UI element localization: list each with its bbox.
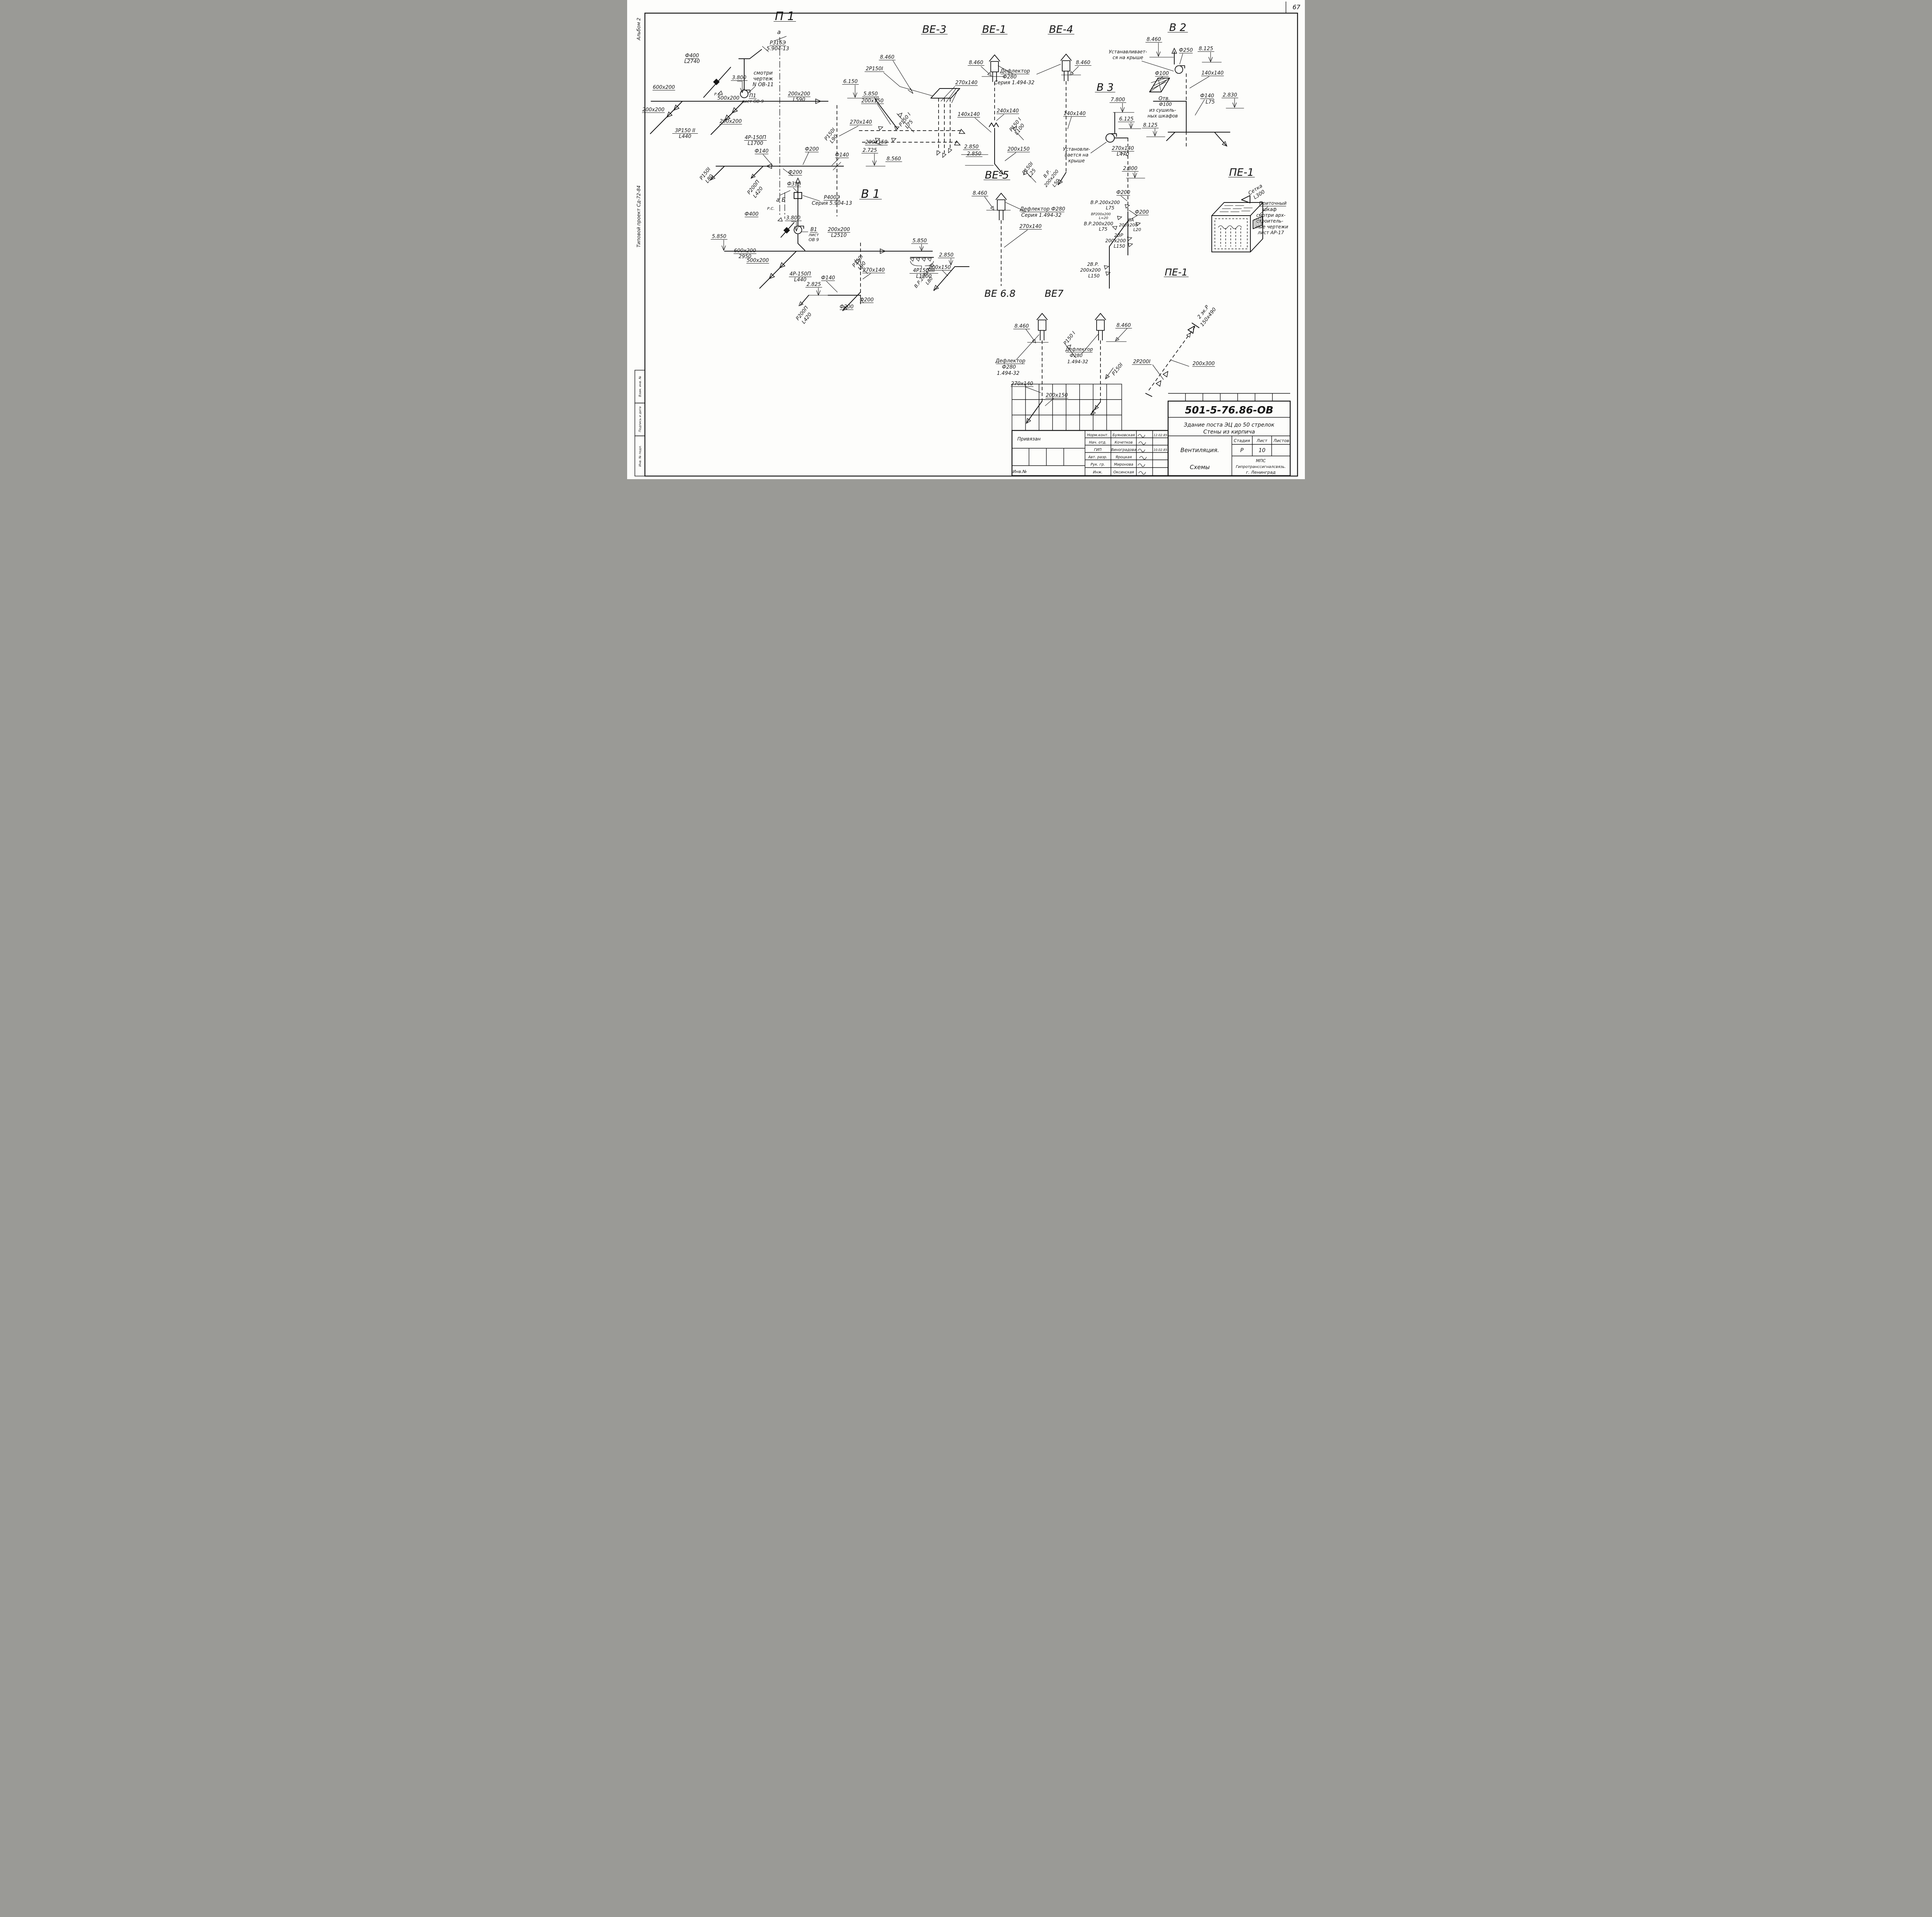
svg-text:крыше: крыше	[1068, 158, 1085, 163]
svg-text:Р400Э: Р400Э	[824, 195, 840, 201]
svg-text:5.904-13: 5.904-13	[767, 46, 789, 52]
annotation-label: 200x200	[642, 107, 665, 113]
annotation-label: 2.850	[966, 151, 983, 157]
svg-text:2.850: 2.850	[967, 151, 981, 157]
section-title-v2: В 2	[1168, 22, 1188, 34]
annotation-label: строитель-	[1256, 218, 1283, 224]
svg-text:8.125: 8.125	[1143, 122, 1157, 128]
annotation-label: 270x140	[1112, 146, 1134, 151]
svg-text:2В.Р.: 2В.Р.	[1087, 262, 1099, 267]
annotation-label: L=20	[1099, 216, 1108, 220]
svg-text:лист: лист	[808, 232, 819, 237]
svg-text:200x150: 200x150	[929, 265, 951, 270]
object-line2: Стены из кирпича	[1203, 429, 1255, 435]
org-line1: МПС	[1256, 458, 1266, 463]
annotation-label: Отв.	[1157, 96, 1171, 102]
annotation-label: L75	[1099, 226, 1107, 232]
sign-name-3: Яроцкая	[1115, 455, 1132, 459]
annotation-label: Ф200	[1116, 190, 1130, 196]
annotation-label: Ф200	[1135, 209, 1149, 215]
svg-text:Ф280: Ф280	[1070, 353, 1083, 358]
annotation-label: смотри арх-	[1256, 213, 1286, 218]
annotation-label: Ф140	[755, 148, 769, 154]
sign-date-0: 12.02.85	[1153, 434, 1167, 437]
doc-title-line2: Схемы	[1190, 464, 1210, 471]
svg-text:L20: L20	[1133, 227, 1141, 232]
annotation-label: 6.125	[1118, 116, 1135, 122]
svg-text:Серия 1.494-32: Серия 1.494-32	[1021, 213, 1061, 218]
annotation-label: 140x140	[1201, 70, 1224, 76]
svg-text:5.850: 5.850	[912, 238, 927, 244]
page-number: 67	[1293, 3, 1301, 11]
svg-text:П1: П1	[749, 93, 756, 99]
annotation-label: чертеж	[753, 76, 773, 82]
svg-text:L75: L75	[1206, 99, 1215, 105]
svg-text:270x140: 270x140	[1011, 381, 1033, 387]
annotation-label: Ф140	[821, 275, 835, 281]
margin-album: Альбом 2	[636, 18, 641, 41]
svg-text:6.150: 6.150	[843, 79, 857, 85]
annotation-label: 8.460	[1014, 323, 1030, 329]
annotation-label: 200x150	[929, 265, 951, 270]
sign-role-3: Авт. разр.	[1088, 455, 1107, 459]
annotation-label: Ф140	[1200, 93, 1214, 99]
svg-text:600x200: 600x200	[734, 248, 756, 254]
stage-value: Р	[1240, 447, 1244, 454]
annotation-label: Ф280	[1003, 74, 1017, 80]
svg-text:ВЕ-4: ВЕ-4	[1049, 24, 1073, 36]
annotation-label: 600x200	[653, 85, 675, 90]
svg-text:Серия 1.494-32: Серия 1.494-32	[994, 80, 1034, 86]
annotation-label: 270x140	[1011, 381, 1034, 387]
annotation-label: 2.800	[1122, 166, 1139, 172]
section-title-pe1-bottom: ПЕ-1	[1164, 267, 1189, 278]
annotation-label: из сушиль-	[1149, 107, 1176, 113]
annotation-label: 200x200	[788, 91, 811, 97]
annotation-label: L2510	[831, 233, 847, 238]
annotation-label: Р.С.	[767, 207, 774, 211]
svg-text:ОВ 9: ОВ 9	[809, 237, 819, 242]
annotation-label: 200x150	[1007, 146, 1030, 152]
section-title-p1: П 1	[774, 10, 796, 23]
svg-text:240x140: 240x140	[997, 108, 1019, 114]
svg-text:шкаф: шкаф	[1263, 207, 1277, 212]
svg-text:2ВР: 2ВР	[1114, 233, 1123, 238]
section-title-ve4: ВЕ-4	[1048, 24, 1075, 36]
svg-text:270x140: 270x140	[850, 119, 872, 125]
svg-text:Ф200: Ф200	[805, 146, 819, 152]
svg-text:140x140: 140x140	[1063, 111, 1085, 117]
svg-text:2Р150I: 2Р150I	[866, 66, 883, 72]
svg-text:2.850: 2.850	[964, 144, 978, 150]
annotation-label: ся на крыше	[1112, 55, 1143, 60]
svg-text:Ф140: Ф140	[1200, 93, 1214, 99]
svg-text:2.800: 2.800	[1123, 166, 1137, 172]
annotation-label: Дефлектор	[1065, 347, 1093, 352]
svg-text:Ф200: Ф200	[860, 297, 874, 303]
svg-text:270x140: 270x140	[862, 267, 884, 273]
binding-note: Привязан	[1017, 436, 1041, 442]
annotation-label: 2.850	[938, 252, 955, 258]
annotation-label: ОВ 9	[809, 237, 819, 242]
svg-text:200x200: 200x200	[1080, 267, 1101, 273]
svg-text:8.460: 8.460	[1014, 323, 1029, 329]
annotation-label: В.Р.200x200	[1090, 200, 1120, 205]
svg-text:1.494-32: 1.494-32	[1067, 359, 1088, 364]
annotation-label: 5.850	[862, 91, 879, 97]
annotation-label: ных шкафов	[1148, 113, 1178, 119]
svg-text:L75: L75	[1099, 226, 1107, 232]
svg-text:ПЕ-1: ПЕ-1	[1229, 167, 1254, 179]
svg-text:Р.С.: Р.С.	[767, 207, 774, 211]
svg-text:ВЕ-3: ВЕ-3	[922, 24, 947, 36]
svg-text:L470: L470	[1117, 151, 1129, 157]
svg-text:200x150: 200x150	[1046, 393, 1068, 398]
annotation-label: 2Р150I	[865, 66, 884, 72]
svg-text:600x200: 600x200	[653, 85, 675, 90]
svg-text:7.800: 7.800	[1111, 97, 1125, 103]
svg-text:L590: L590	[793, 97, 805, 103]
svg-text:200x300: 200x300	[1192, 361, 1214, 367]
svg-text:Ф315: Ф315	[787, 181, 801, 187]
svg-text:В.Р.200x200: В.Р.200x200	[1090, 200, 1120, 205]
svg-text:П 1: П 1	[775, 10, 794, 23]
annotation-label: Ф400	[685, 53, 699, 59]
sign-name-1: Кочетков	[1115, 441, 1133, 445]
svg-text:2Р200I: 2Р200I	[1133, 359, 1151, 365]
annotation-label: Р400Э	[824, 195, 840, 201]
svg-text:5.850: 5.850	[863, 91, 878, 97]
svg-text:500x200: 500x200	[717, 95, 739, 101]
annotation-label: Устанавливает-	[1109, 49, 1147, 54]
svg-text:Ф200: Ф200	[1135, 209, 1149, 215]
annotation-label: 5.850	[711, 234, 728, 240]
annotation-label: ВА	[1128, 218, 1134, 223]
svg-text:ВЕ7: ВЕ7	[1045, 288, 1064, 299]
annotation-label: Ф250	[1179, 48, 1193, 53]
annotation-label: 600x200	[734, 248, 757, 254]
annotation-label: L440	[679, 134, 691, 139]
svg-text:L75: L75	[1106, 205, 1114, 211]
annotation-label: 200x200	[719, 119, 742, 124]
svg-text:Ф100: Ф100	[1155, 71, 1169, 77]
annotation-label: смотри	[753, 70, 772, 76]
margin-stamp-bottom: Инв. № подл.	[638, 445, 642, 466]
annotation-label: 270x140	[1019, 224, 1042, 230]
svg-text:3.800: 3.800	[786, 215, 800, 221]
sign-role-2: ГИП	[1094, 448, 1102, 452]
svg-text:Р150 I: Р150 I	[1063, 330, 1077, 346]
annotation-label: Ф280	[1002, 364, 1016, 370]
section-v3-geometry	[1091, 103, 1145, 288]
annotation-label: Ф200	[805, 146, 819, 152]
section-title-pe1: ПЕ-1	[1228, 167, 1255, 179]
svg-text:вается на: вается на	[1065, 152, 1088, 158]
svg-text:Дефлектор Ф280: Дефлектор Ф280	[1019, 206, 1065, 212]
annotation-label: 200x200	[1080, 267, 1101, 273]
svg-text:L440: L440	[679, 134, 691, 139]
annotation-label: a	[777, 29, 781, 36]
svg-text:1.494-32: 1.494-32	[997, 371, 1019, 376]
annotation-label: Дефлектор	[1000, 68, 1030, 74]
svg-text:а Б: а Б	[776, 196, 786, 203]
svg-text:200x200: 200x200	[788, 91, 810, 97]
annotation-label: 200x150	[1046, 393, 1068, 398]
annotation-label: Ф200	[788, 170, 802, 175]
annotation-label: 200x150	[865, 139, 888, 145]
annotation-label: 2.850	[963, 144, 980, 150]
annotation-label: вается на	[1065, 152, 1088, 158]
annotation-label: лист АР-17	[1257, 230, 1284, 235]
sheet-value: 10	[1259, 447, 1265, 454]
section-pe1-bottom-geometry	[1146, 323, 1199, 396]
annotation-label: Дефлектор	[995, 358, 1025, 364]
sign-name-0: Буяновская	[1112, 433, 1135, 437]
sign-name-2: Виноградова	[1111, 448, 1136, 452]
annotation-label: крыше	[1068, 158, 1085, 163]
svg-text:6.125: 6.125	[1119, 116, 1133, 122]
svg-text:В 3: В 3	[1097, 82, 1114, 94]
svg-text:200x200: 200x200	[1105, 238, 1126, 243]
section-title-ve5: ВЕ-5	[984, 169, 1010, 181]
svg-text:8.460: 8.460	[969, 60, 983, 66]
inv-label: Инв.№	[1013, 469, 1027, 474]
annotation-label: лист	[808, 232, 819, 237]
svg-text:200x150: 200x150	[861, 98, 883, 104]
annotation-label: ные чертежи	[1256, 224, 1288, 230]
sign-date-2: 10.02.85	[1153, 448, 1167, 452]
section-title-v3: В 3	[1095, 82, 1116, 94]
annotation-label: 4Р-150П	[789, 271, 812, 277]
svg-text:Ф200: Ф200	[788, 170, 802, 175]
svg-text:200x200: 200x200	[828, 227, 850, 233]
svg-text:2.830: 2.830	[1223, 92, 1237, 98]
annotation-label: Дефлектор Ф280	[1019, 206, 1065, 212]
sign-name-4: Миронова	[1114, 463, 1133, 467]
annotation-label: N ОВ-11	[753, 82, 774, 88]
svg-text:5.850: 5.850	[712, 234, 726, 240]
svg-text:Р315Э: Р315Э	[770, 40, 786, 46]
svg-text:200x200: 200x200	[642, 107, 664, 113]
annotation-label: 8.560	[886, 156, 902, 162]
sign-role-4: Рук. гр.	[1090, 463, 1105, 467]
svg-text:Дефлектор: Дефлектор	[995, 358, 1025, 364]
svg-text:Устанавливает-: Устанавливает-	[1109, 49, 1147, 54]
annotation-label: 500x200	[747, 258, 769, 264]
svg-text:ся на крыше: ся на крыше	[1112, 55, 1143, 60]
svg-text:Ф250: Ф250	[1179, 48, 1193, 53]
svg-text:8.125: 8.125	[1199, 46, 1213, 52]
annotation-label: 8.125	[1198, 46, 1214, 52]
svg-text:ПЕ-1: ПЕ-1	[1165, 267, 1188, 278]
annotation-label: 270x140	[850, 119, 872, 125]
annotation-label: Ф315	[787, 181, 801, 187]
svg-text:чертеж: чертеж	[753, 76, 773, 82]
annotation-label: ВР200x200	[1091, 213, 1111, 216]
svg-text:200x200: 200x200	[719, 119, 742, 124]
annotation-label: 140x140	[1063, 111, 1086, 117]
svg-text:Ф140: Ф140	[755, 148, 769, 154]
annotation-label: Серия 5.904-13	[812, 201, 852, 206]
svg-text:Ф140: Ф140	[835, 152, 849, 158]
svg-text:8.560: 8.560	[886, 156, 901, 162]
svg-text:200x150: 200x150	[865, 139, 887, 145]
annotation-label: 2В.Р.	[1087, 262, 1099, 267]
annotation-label: Р315Э	[770, 40, 786, 46]
margin-stamp-top: Взам. инв. №	[638, 376, 642, 397]
svg-text:L2740: L2740	[684, 59, 700, 65]
org-line3: г. Ленинград	[1246, 470, 1276, 475]
annotation-label: В.Р.200x200	[1084, 221, 1113, 226]
annotation-label: 3.800	[731, 75, 748, 81]
svg-text:N ОВ-11: N ОВ-11	[753, 82, 774, 88]
annotation-label: Ф140	[835, 152, 849, 158]
svg-text:Дефлектор: Дефлектор	[1000, 68, 1030, 74]
annotation-label: 270x140	[955, 80, 978, 86]
annotation-label: L440	[794, 277, 806, 283]
sign-name-5: Оксинская	[1113, 470, 1134, 475]
svg-text:Р150I: Р150I	[1111, 362, 1124, 377]
annotation-label: 200x300	[1192, 361, 1215, 367]
annotation-label: L590	[793, 97, 805, 103]
svg-text:ВЕ-1: ВЕ-1	[982, 24, 1007, 36]
svg-text:смотри арх-: смотри арх-	[1256, 213, 1286, 218]
annotation-label: 8.460	[879, 54, 896, 60]
section-title-ve1: ВЕ-1	[981, 24, 1008, 36]
margin-stamp-mid: Подпись и дата	[638, 407, 642, 432]
drawing-sheet: 67 Альбом 2 Типовой проект Сд-72-84 Взам…	[627, 0, 1305, 479]
annotation-label: а Б	[776, 196, 786, 203]
svg-text:ВЕ 6.8: ВЕ 6.8	[985, 288, 1016, 299]
svg-text:смотри: смотри	[753, 70, 772, 76]
svg-text:8.460: 8.460	[1116, 323, 1131, 328]
annotation-label: 8.460	[972, 191, 988, 196]
annotation-label: Ф100	[1155, 71, 1169, 77]
annotation-label: Р150 I	[1063, 330, 1077, 346]
annotation-label: Ф200	[860, 297, 874, 303]
annotation-label: L75	[1206, 99, 1215, 105]
annotation-label: 240x140	[997, 108, 1019, 114]
annotation-label: Установли-	[1063, 146, 1090, 152]
margin-project: Типовой проект Сд-72-84	[636, 185, 641, 247]
svg-text:200x150: 200x150	[1007, 146, 1029, 152]
svg-text:8.460: 8.460	[973, 191, 987, 196]
svg-text:Ф100: Ф100	[1159, 102, 1172, 107]
doc-code: 501-5-76.86-ОВ	[1185, 405, 1274, 416]
annotation-label: 2ВР	[1114, 233, 1123, 238]
svg-text:Приточный: Приточный	[1259, 201, 1287, 206]
svg-text:Отв.: Отв.	[1158, 96, 1170, 102]
annotation-label: 8.460	[968, 60, 985, 66]
sign-role-1: Нач. отд.	[1089, 441, 1107, 445]
annotation-label: лист ОВ-9	[741, 99, 764, 104]
svg-text:L150: L150	[1088, 273, 1100, 279]
svg-text:2.725: 2.725	[862, 148, 877, 153]
section-title-ve3: ВЕ-3	[921, 24, 948, 36]
svg-text:Ф280: Ф280	[1002, 364, 1016, 370]
svg-text:строитель-: строитель-	[1256, 218, 1283, 224]
annotation-label: 5.850	[912, 238, 928, 244]
svg-text:L=20: L=20	[1099, 216, 1108, 220]
svg-text:ВЕ-5: ВЕ-5	[985, 169, 1009, 181]
annotation-label: 3Р150 II	[672, 128, 698, 134]
annotation-label: 200x200	[1105, 238, 1126, 243]
svg-text:ВР200x200: ВР200x200	[1091, 213, 1111, 216]
svg-text:4Р-150П: 4Р-150П	[789, 271, 811, 277]
sheet-label: Лист	[1256, 438, 1267, 443]
annotation-label: Серия 1.494-32	[1021, 213, 1061, 218]
svg-text:В 1: В 1	[861, 187, 880, 201]
annotation-label: Ф100	[1159, 102, 1172, 107]
object-line1: Здание поста ЭЦ до 50 стрелок	[1184, 422, 1275, 428]
svg-text:В.Р.200x200: В.Р.200x200	[1084, 221, 1113, 226]
doc-title-line1: Вентиляция.	[1180, 447, 1219, 454]
svg-text:8.460: 8.460	[1146, 37, 1161, 43]
svg-text:L150: L150	[1114, 243, 1125, 249]
svg-text:3Р150 II: 3Р150 II	[675, 128, 696, 134]
sheets-label: Листов	[1273, 438, 1289, 443]
annotation-label: 8.460	[1075, 60, 1092, 66]
annotation-label: 270x140	[862, 267, 885, 273]
section-title-v1: В 1	[859, 187, 882, 201]
annotation-label: 4Р-150П	[744, 135, 767, 141]
annotation-label: 8.460	[1146, 37, 1162, 43]
annotation-label: 6.150	[842, 79, 859, 85]
svg-text:L440: L440	[794, 277, 806, 283]
svg-text:2.850: 2.850	[939, 252, 953, 258]
svg-text:из сушиль-: из сушиль-	[1149, 107, 1176, 113]
annotation-label: Ф200	[840, 304, 854, 310]
annotation-label: Ф280	[1070, 353, 1083, 358]
annotation-label: L75	[1106, 205, 1114, 211]
svg-text:Дефлектор: Дефлектор	[1065, 347, 1093, 352]
svg-text:270x140: 270x140	[955, 80, 977, 86]
section-title-ve7: ВЕ7	[1045, 288, 1064, 299]
svg-text:4Р-150П: 4Р-150П	[745, 135, 766, 141]
svg-text:лист АР-17: лист АР-17	[1257, 230, 1284, 235]
annotation-label: 8.125	[1142, 122, 1159, 128]
annotation-label: 2.830	[1222, 92, 1238, 98]
svg-text:Серия 5.904-13: Серия 5.904-13	[812, 201, 852, 206]
annotation-label: L150	[1114, 243, 1125, 249]
annotation-label: 2Р200I	[1132, 359, 1152, 365]
sign-role-5: Инж.	[1093, 470, 1103, 475]
svg-text:Ф400: Ф400	[685, 53, 699, 59]
annotation-label: Ф400	[745, 211, 759, 217]
org-line2: Гипротранссигналсвязь.	[1236, 465, 1286, 469]
annotations-layer: П 1aР315Э5.904-13Ф400L2740смотричертежN …	[642, 10, 1288, 398]
annotation-label: 2.825	[806, 282, 822, 287]
svg-text:Ф200: Ф200	[1116, 190, 1130, 196]
annotation-label: П1	[749, 93, 757, 99]
annotation-label: В1	[810, 227, 818, 233]
annotation-label: 2.725	[862, 148, 878, 153]
svg-text:Ф140: Ф140	[821, 275, 835, 281]
annotation-label: Р150I	[1111, 362, 1124, 377]
svg-text:a: a	[777, 29, 781, 36]
annotation-label: 8.460	[1116, 323, 1132, 328]
section-title-ve68: ВЕ 6.8	[985, 288, 1016, 299]
annotation-label: L1700	[748, 141, 763, 146]
annotation-label: L470	[1117, 151, 1129, 157]
annotation-label: 1.494-32	[997, 371, 1019, 376]
annotation-label: Серия 1.494-32	[994, 80, 1034, 86]
annotation-label: 3.800	[785, 215, 802, 221]
svg-text:3.800: 3.800	[732, 75, 746, 81]
svg-text:500x200: 500x200	[747, 258, 769, 264]
svg-text:Ф280: Ф280	[1003, 74, 1017, 80]
svg-text:L2510: L2510	[831, 233, 847, 238]
